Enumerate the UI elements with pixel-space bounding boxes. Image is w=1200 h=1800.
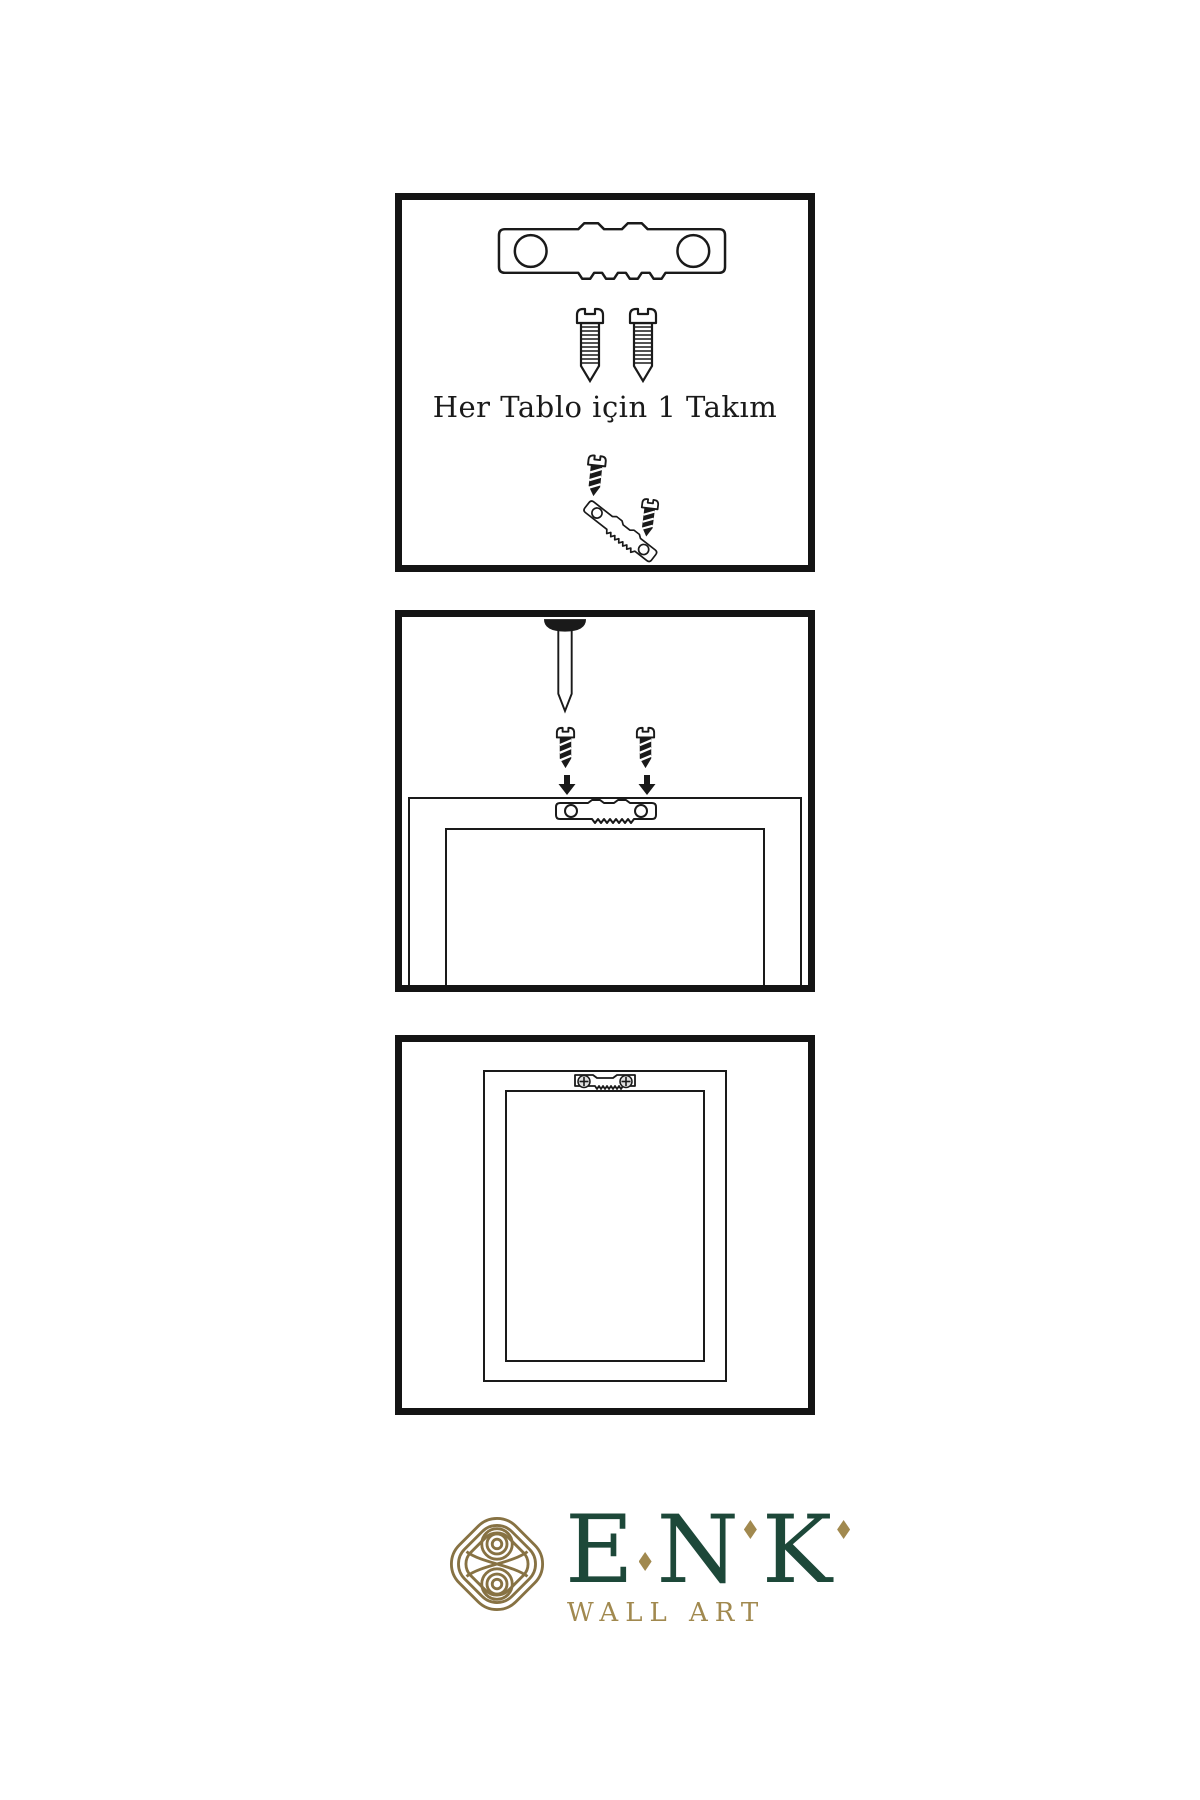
sawtooth-hanger-mounted-icon <box>571 1072 639 1094</box>
screw-icon <box>625 305 661 385</box>
knot-logo-icon <box>437 1502 557 1626</box>
screw-icon <box>581 451 611 501</box>
diamond-icon <box>837 1520 850 1539</box>
brand-name: E N K <box>565 1504 853 1598</box>
brand-letter: E <box>565 1504 634 1598</box>
instruction-sheet: Her Tablo için 1 Takım <box>0 0 1200 1800</box>
brand-subtitle: WALL ART <box>567 1598 765 1628</box>
brand-logo: E N K WALL ART <box>437 1496 817 1646</box>
panel-install-hanger <box>395 610 815 992</box>
screw-icon <box>553 725 578 771</box>
wall-nail-icon <box>543 617 587 717</box>
brand-letter: K <box>762 1504 832 1598</box>
sawtooth-hanger-icon <box>495 222 729 280</box>
screw-icon <box>634 495 662 541</box>
diamond-icon <box>744 1520 757 1539</box>
screw-icon <box>572 305 608 385</box>
screw-icon <box>633 725 658 771</box>
brand-letter: N <box>657 1504 739 1598</box>
frame-inner-edge <box>445 828 765 992</box>
panel-hang-frame <box>395 1035 815 1415</box>
kit-caption: Her Tablo için 1 Takım <box>402 390 808 424</box>
down-arrow-icon <box>558 775 576 795</box>
hanger-assembly-diagram <box>575 448 695 566</box>
diamond-icon <box>639 1552 652 1571</box>
frame-inner-edge <box>505 1090 705 1362</box>
panel-hardware-kit: Her Tablo için 1 Takım <box>395 193 815 572</box>
down-arrow-icon <box>638 775 656 795</box>
sawtooth-hanger-icon <box>554 799 658 825</box>
